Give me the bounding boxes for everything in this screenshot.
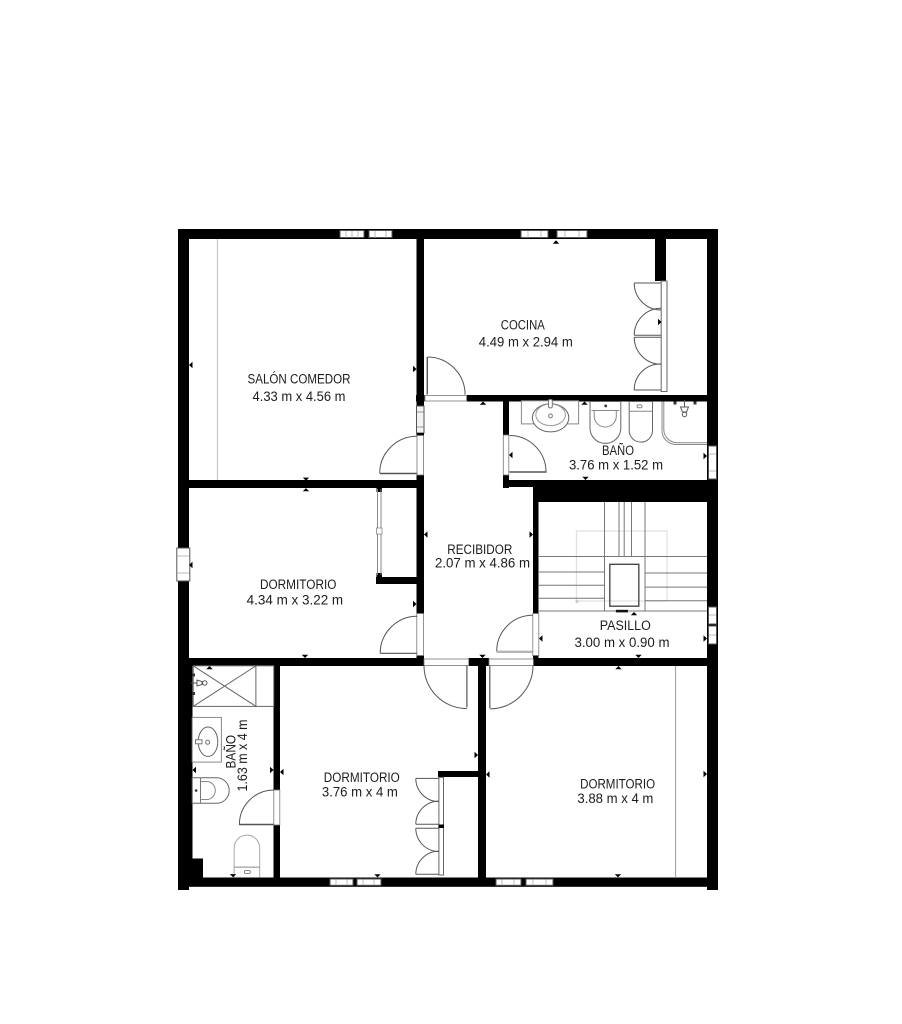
svg-text:DORMITORIO: DORMITORIO [580, 776, 655, 792]
svg-text:2.07 m x 4.86 m: 2.07 m x 4.86 m [435, 555, 530, 571]
svg-text:DORMITORIO: DORMITORIO [324, 770, 400, 786]
svg-text:COCINA: COCINA [501, 317, 545, 333]
svg-text:3.76 m x 4 m: 3.76 m x 4 m [322, 785, 398, 801]
svg-text:PASILLO: PASILLO [600, 618, 651, 634]
svg-text:4.33 m x 4.56 m: 4.33 m x 4.56 m [253, 389, 346, 405]
svg-text:4.49 m x 2.94 m: 4.49 m x 2.94 m [479, 334, 573, 350]
svg-text:3.00 m x 0.90 m: 3.00 m x 0.90 m [575, 635, 670, 651]
svg-text:3.76 m x 1.52 m: 3.76 m x 1.52 m [569, 457, 663, 473]
svg-text:3.88 m x 4 m: 3.88 m x 4 m [577, 791, 653, 807]
svg-text:SALÓN COMEDOR: SALÓN COMEDOR [248, 370, 351, 387]
svg-text:1.63 m x 4 m: 1.63 m x 4 m [235, 720, 251, 792]
svg-text:BAÑO: BAÑO [602, 442, 634, 459]
svg-text:DORMITORIO: DORMITORIO [260, 577, 337, 593]
svg-text:4.34 m x 3.22 m: 4.34 m x 3.22 m [247, 592, 344, 608]
